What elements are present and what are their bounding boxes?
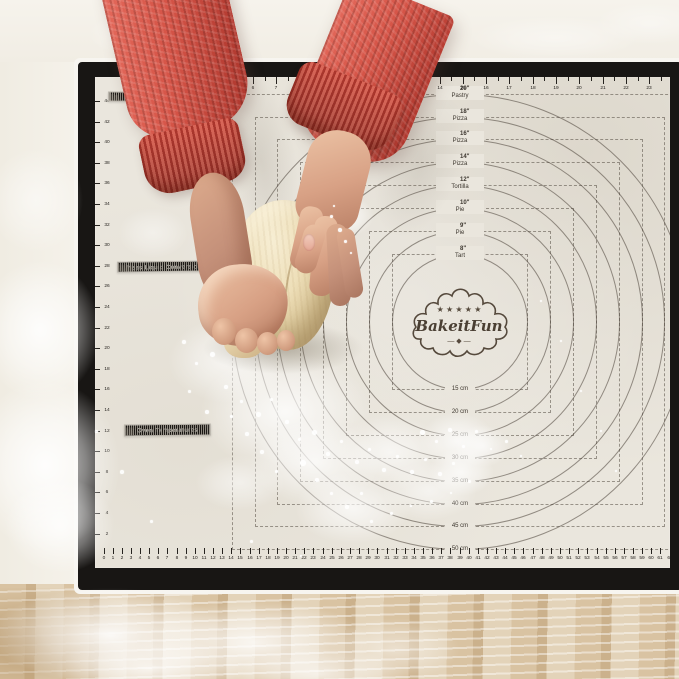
ruler-tick	[95, 163, 100, 164]
flour-speck	[410, 505, 412, 507]
ruler-tick	[486, 77, 487, 84]
flour-speck	[224, 385, 228, 389]
ruler-number: 4	[101, 511, 112, 516]
ruler-number: 34	[101, 202, 112, 207]
ruler-number: 30	[101, 243, 112, 248]
ruler-number: 2	[101, 531, 112, 536]
flour-speck	[333, 205, 335, 207]
flour-speck	[275, 470, 278, 473]
flour-speck	[240, 400, 243, 403]
ruler-number: 14	[101, 408, 112, 413]
flour-speck	[330, 492, 333, 495]
counter-left	[0, 62, 78, 592]
flour-speck	[505, 440, 508, 443]
ruler-tick	[195, 548, 196, 554]
ruler-tick	[377, 548, 378, 554]
flour-speck	[315, 478, 319, 482]
ruler-tick	[591, 77, 592, 81]
ruler-number: 19	[550, 86, 561, 91]
flour-speck	[360, 492, 363, 495]
ruler-number: 10	[101, 449, 112, 454]
badge-flourish: — ◆ —	[447, 338, 470, 345]
ruler-tick	[368, 548, 369, 554]
ruler-tick	[95, 389, 100, 390]
ruler-number: 20	[574, 86, 585, 91]
flour-speck	[390, 512, 393, 515]
ruler-tick	[633, 548, 634, 554]
ruler-tick	[387, 548, 388, 554]
ruler-tick	[651, 548, 652, 554]
ruler-tick	[286, 548, 287, 554]
ruler-tick	[95, 286, 100, 287]
flour-speck	[560, 340, 562, 342]
ruler-tick	[560, 548, 561, 554]
flour-speck	[312, 430, 317, 435]
ruler-tick	[95, 122, 100, 123]
ruler-number: 62	[664, 556, 670, 561]
ruler-tick	[95, 513, 100, 514]
flour-speck	[120, 470, 124, 474]
ruler-number: 18	[101, 366, 112, 371]
chart-cell: 475	[126, 435, 137, 437]
flour-speck	[520, 455, 522, 457]
flour-speck	[256, 412, 261, 417]
oven-row: 9250475	[125, 434, 210, 436]
ruler-tick	[432, 548, 433, 554]
ruler-tick	[660, 548, 661, 554]
ruler-tick	[95, 410, 100, 411]
flour-speck	[300, 555, 302, 557]
ruler-number: 17	[504, 86, 515, 91]
flour-speck	[344, 240, 347, 243]
flour-speck	[452, 462, 455, 465]
ruler-tick	[624, 548, 625, 554]
oven-chart-body: Gas°C°F114027521503003160325418035051903…	[125, 425, 210, 436]
flour-speck	[345, 505, 349, 509]
ruler-tick	[95, 245, 100, 246]
ruler-tick	[661, 77, 662, 81]
flour-speck	[260, 450, 264, 454]
ruler-number: 22	[620, 86, 631, 91]
ruler-tick	[222, 548, 223, 554]
ruler-tick	[469, 548, 470, 554]
ruler-tick	[277, 548, 278, 554]
ruler-tick	[313, 548, 314, 554]
ruler-tick	[396, 548, 397, 554]
ruler-number: 40	[101, 140, 112, 145]
flour-speck	[424, 458, 427, 461]
chart-cell: 128 fl oz	[119, 271, 141, 273]
ruler-number: 20	[101, 346, 112, 351]
flour-speck	[580, 390, 582, 392]
ruler-tick	[460, 548, 461, 554]
flour-speck	[355, 460, 359, 464]
ruler-tick	[615, 548, 616, 554]
flour-speck	[438, 472, 442, 476]
flour-speck	[475, 430, 478, 433]
ruler-number: 16	[101, 387, 112, 392]
ruler-number: 14	[434, 86, 445, 91]
flour-speck	[600, 430, 602, 432]
ruler-tick	[95, 183, 100, 184]
ruler-tick	[551, 548, 552, 554]
ruler-tick	[359, 548, 360, 554]
ruler-tick	[288, 77, 289, 81]
ruler-tick	[341, 548, 342, 554]
ruler-tick	[487, 548, 488, 554]
ruler-tick	[113, 548, 114, 554]
ruler-tick	[240, 548, 241, 554]
ruler-tick	[478, 548, 479, 554]
flour-speck	[250, 540, 253, 543]
ruler-tick	[186, 548, 187, 554]
ruler-tick	[268, 548, 269, 554]
ruler-number: 24	[101, 305, 112, 310]
ruler-tick	[649, 77, 650, 84]
ruler-tick	[131, 548, 132, 554]
ruler-tick	[95, 369, 100, 370]
ruler-tick	[405, 548, 406, 554]
ruler-tick	[177, 548, 178, 554]
ruler-tick	[95, 534, 100, 535]
ruler-tick	[259, 548, 260, 554]
flour-speck	[338, 228, 342, 232]
ruler-tick	[95, 101, 100, 102]
ruler-number: 7	[271, 86, 282, 91]
ruler-number: 36	[101, 181, 112, 186]
ruler-tick	[140, 548, 141, 554]
flour-speck	[448, 428, 452, 432]
ruler-tick	[95, 348, 100, 349]
ruler-tick	[579, 77, 580, 84]
left-hand-knuckle	[277, 330, 295, 351]
ruler-number: 18	[527, 86, 538, 91]
left-hand-knuckle	[235, 328, 258, 353]
brand-name: BakeitFun	[414, 317, 502, 335]
flour-speck	[270, 398, 273, 401]
left-hand-knuckle	[212, 318, 236, 345]
flour-speck	[350, 252, 352, 254]
ruler-tick	[95, 204, 100, 205]
flour-speck	[326, 452, 330, 456]
ruler-tick	[556, 77, 557, 84]
ruler-number: 8	[101, 469, 112, 474]
ruler-tick	[213, 548, 214, 554]
ruler-tick	[95, 142, 100, 143]
ruler-tick	[450, 548, 451, 554]
ruler-tick	[265, 77, 266, 81]
ruler-number: 12	[101, 428, 112, 433]
ruler-tick	[295, 548, 296, 554]
ruler-tick	[523, 548, 524, 554]
ruler-tick	[440, 77, 441, 84]
flour-speck	[245, 432, 249, 436]
ruler-number: 6	[101, 490, 112, 495]
flour-speck	[370, 520, 373, 523]
ruler-tick	[122, 548, 123, 554]
ruler-tick	[95, 307, 100, 308]
ruler-tick	[463, 77, 464, 84]
flour-speck	[340, 440, 343, 443]
flour-speck	[298, 438, 301, 441]
flour-speck	[95, 430, 98, 433]
ruler-tick	[533, 548, 534, 554]
flour-speck	[150, 520, 153, 523]
flour-speck	[450, 492, 452, 494]
ruler-tick	[474, 77, 475, 81]
flour-speck	[188, 390, 191, 393]
flour-speck	[430, 500, 433, 503]
ruler-tick	[231, 548, 232, 554]
flour-speck	[420, 430, 425, 435]
ruler-tick	[441, 548, 442, 554]
flour-speck	[330, 215, 333, 218]
ruler-tick	[95, 225, 100, 226]
ruler-tick	[587, 548, 588, 554]
flour-speck	[410, 470, 414, 474]
ruler-tick	[505, 548, 506, 554]
ruler-tick	[323, 548, 324, 554]
ruler-tick	[509, 77, 510, 84]
ruler-tick	[250, 548, 251, 554]
flour-speck	[285, 420, 289, 424]
ruler-number: 38	[101, 160, 112, 165]
ruler-tick	[204, 548, 205, 554]
flour-speck	[468, 480, 471, 483]
ruler-tick	[569, 548, 570, 554]
flour-speck	[182, 340, 186, 344]
flour-speck	[230, 415, 233, 418]
ruler-number: 15	[457, 86, 468, 91]
ruler-tick	[638, 77, 639, 81]
ruler-tick	[498, 77, 499, 81]
ruler-tick	[496, 548, 497, 554]
ruler-number: 16	[480, 86, 491, 91]
ruler-tick	[158, 548, 159, 554]
ruler-tick	[95, 492, 100, 493]
ruler-tick	[614, 77, 615, 81]
flour-speck	[540, 300, 542, 302]
ruler-tick	[104, 548, 105, 554]
ruler-tick	[603, 77, 604, 84]
ruler-number: 28	[101, 263, 112, 268]
flour-speck	[396, 455, 399, 458]
wood-corner-patch	[0, 588, 150, 679]
ruler-number: 42	[101, 119, 112, 124]
ruler-tick	[95, 328, 100, 329]
ruler-tick	[533, 77, 534, 84]
ruler-tick	[304, 548, 305, 554]
ruler-tick	[642, 548, 643, 554]
ruler-tick	[626, 77, 627, 84]
flour-speck	[615, 470, 617, 472]
flour-speck	[195, 362, 198, 365]
ruler-tick	[276, 77, 277, 84]
flour-speck	[300, 460, 306, 466]
badge-stars: ★ ★ ★ ★ ★	[437, 305, 482, 314]
badge-outline-icon: ★ ★ ★ ★ ★ BakeitFun — ◆ —	[407, 285, 511, 361]
ruler-tick	[514, 548, 515, 554]
ruler-tick	[597, 548, 598, 554]
flour-speck	[490, 448, 492, 450]
ruler-tick	[606, 548, 607, 554]
ruler-tick	[253, 77, 254, 84]
left-hand-knuckle	[257, 332, 278, 355]
ruler-tick	[451, 77, 452, 81]
ruler-number: 23	[644, 86, 655, 91]
ruler-number: 6	[247, 86, 258, 91]
brand-badge: ★ ★ ★ ★ ★ BakeitFun — ◆ —	[407, 285, 511, 361]
ruler-tick	[423, 548, 424, 554]
flour-speck	[382, 468, 386, 472]
ruler-tick	[350, 548, 351, 554]
ruler-number: 26	[101, 284, 112, 289]
flour-speck	[210, 352, 215, 357]
ruler-tick	[544, 77, 545, 81]
ruler-tick	[95, 472, 100, 473]
ruler-number: 24	[667, 86, 670, 91]
oven-temperature-chart: Oven Temperatures Gas°C°F114027521503003…	[124, 424, 211, 437]
flour-speck	[435, 440, 438, 443]
ruler-tick	[332, 548, 333, 554]
ruler-number: 21	[597, 86, 608, 91]
thumb-nail	[303, 234, 315, 251]
ruler-tick	[95, 266, 100, 267]
flour-speck	[205, 410, 209, 414]
kneading-dough-photo: 8"Tart15 cm9"Pie20 cm10"Pie25 cm12"Torti…	[0, 0, 679, 679]
ruler-tick	[95, 451, 100, 452]
ruler-tick	[568, 77, 569, 81]
ruler-number: 22	[101, 325, 112, 330]
ruler-tick	[542, 548, 543, 554]
ruler-tick	[414, 548, 415, 554]
ruler-tick	[578, 548, 579, 554]
ruler-tick	[521, 77, 522, 81]
flour-speck	[462, 445, 465, 448]
ruler-tick	[167, 548, 168, 554]
ruler-number: 32	[101, 222, 112, 227]
ruler-tick	[149, 548, 150, 554]
flour-speck	[368, 448, 371, 451]
